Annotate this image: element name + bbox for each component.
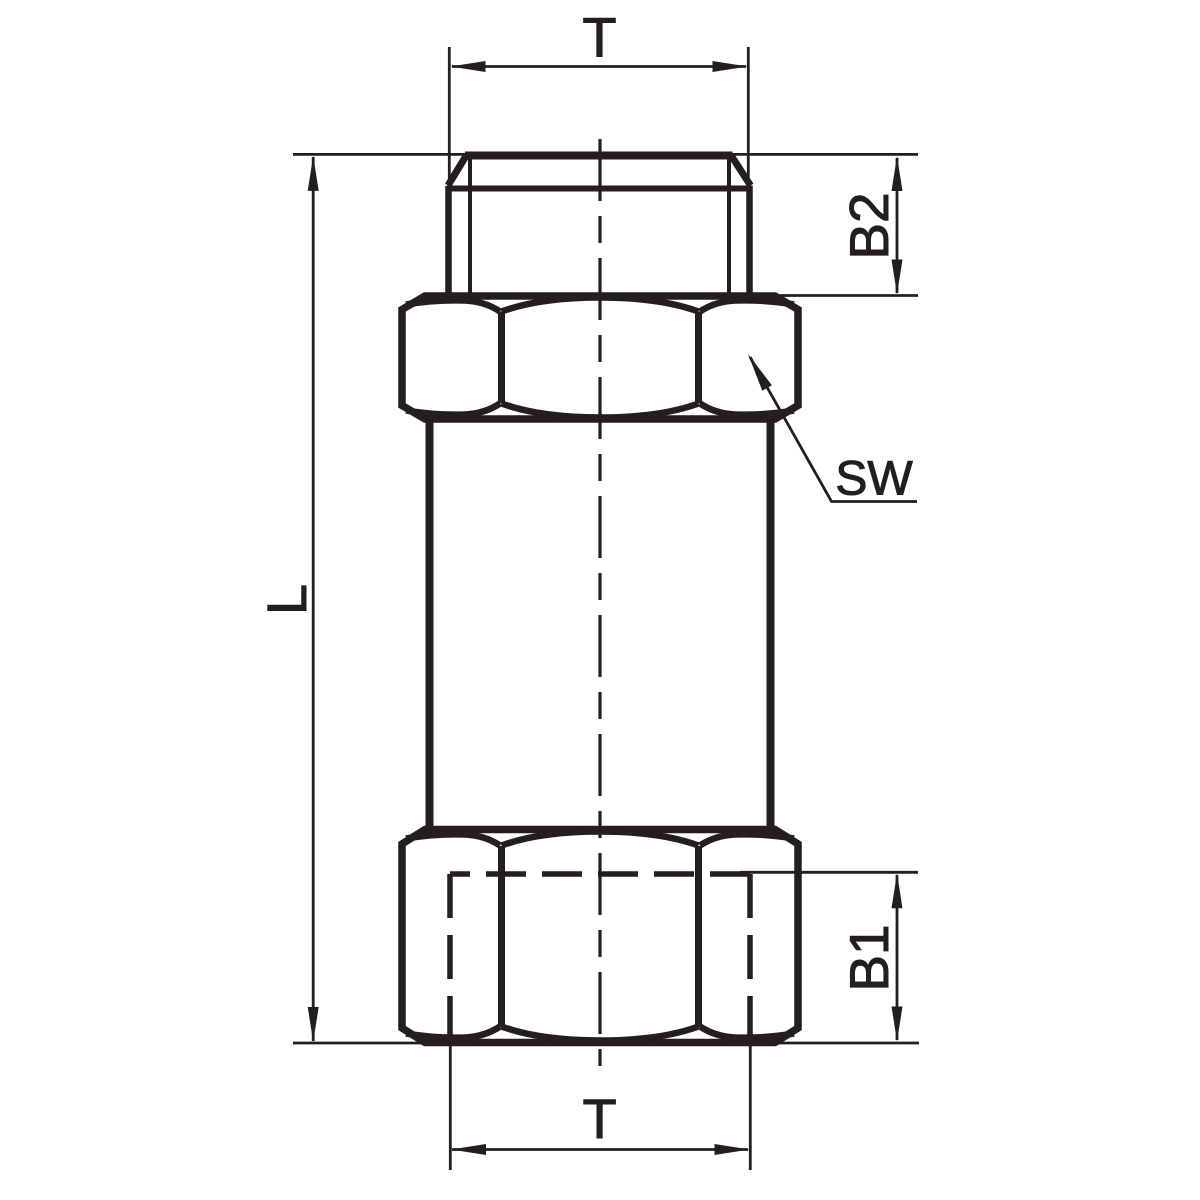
svg-text:B1: B1 bbox=[838, 924, 900, 991]
svg-text:T: T bbox=[582, 1087, 616, 1150]
svg-text:B2: B2 bbox=[838, 192, 900, 259]
svg-text:SW: SW bbox=[835, 453, 913, 506]
svg-text:L: L bbox=[255, 584, 318, 615]
svg-text:T: T bbox=[582, 6, 616, 69]
